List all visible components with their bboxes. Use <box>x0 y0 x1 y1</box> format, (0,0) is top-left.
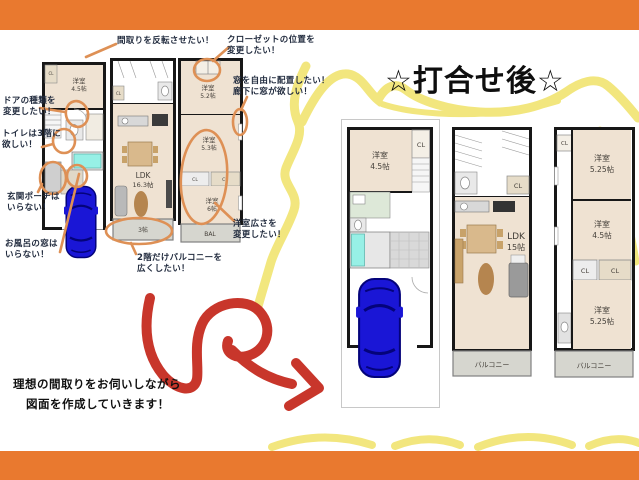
after-car <box>356 277 403 379</box>
annotation-door: ドアの種類を 変更したい！ <box>3 96 56 118</box>
bottom-message: 理想の間取りをお伺いしながら 図面を作成していきます！ <box>13 374 181 414</box>
chair <box>497 241 503 249</box>
balcony-label: BAL <box>204 231 216 238</box>
window <box>239 124 243 140</box>
toilet <box>355 220 362 230</box>
bottom-highlight-1 <box>272 437 372 447</box>
annotation-text: いらない！ <box>5 250 58 261</box>
annotation-balcony: 2階だけバルコニーを 広くしたい！ <box>137 253 222 275</box>
stove <box>493 201 515 212</box>
after-plan-2f: CL LDK 15帖 バルコニー <box>452 127 532 379</box>
entrance-porch <box>45 162 61 192</box>
flip-pointer-line <box>86 44 116 57</box>
ldk-size-label: 16.3帖 <box>133 180 154 189</box>
room-size-label: 5.25帖 <box>590 164 615 174</box>
bottom-highlight-4 <box>589 439 639 446</box>
closet-label: CL <box>48 71 54 76</box>
window <box>555 227 559 245</box>
annotation-text: 変更したい！ <box>227 46 315 57</box>
room-bedroom <box>350 130 412 192</box>
annotation-text: クローゼットの位置を <box>227 35 315 46</box>
window <box>239 196 243 210</box>
annotation-text: 変更したい！ <box>3 107 56 118</box>
chair <box>122 146 127 153</box>
dining-table <box>128 142 152 166</box>
closet-label: CL <box>561 141 569 147</box>
ldk-label: LDK <box>507 232 526 242</box>
stove <box>152 114 168 126</box>
annotation-text: トイレは3階に <box>2 129 61 140</box>
flyer-canvas: CL 洋室 4.5帖 CL <box>0 0 639 480</box>
annotation-flip: 間取りを反転させたい！ <box>117 36 214 47</box>
kitchen-sink <box>461 203 468 210</box>
balcony-label: 3帖 <box>138 226 148 234</box>
room-size-label: 5.25帖 <box>590 316 615 326</box>
room-label: 洋室 <box>203 135 217 144</box>
bathtub <box>352 234 365 266</box>
stairs <box>412 158 430 192</box>
top-orange-bar <box>0 0 639 30</box>
bottom-highlight-3 <box>478 437 572 447</box>
room-label: 洋室 <box>594 153 610 163</box>
divider-highlight-squiggle <box>257 66 306 310</box>
annotation-text: 欲しい！ <box>2 140 61 151</box>
balcony-label: バルコニー <box>475 361 510 369</box>
annotation-text: 広くしたい！ <box>137 264 222 275</box>
annotation-text: 窓を自由に配置したい！ <box>233 76 330 87</box>
annotation-text: 2階だけバルコニーを <box>137 253 222 264</box>
annotation-porch: 玄関ポーチは いらない！ <box>7 192 60 214</box>
room-size-label: 4.5帖 <box>370 161 390 171</box>
bottom-highlight-2 <box>395 439 460 446</box>
annotation-bath-window: お風呂の窓は いらない！ <box>5 239 58 261</box>
entry-tile <box>390 232 429 268</box>
tv <box>511 255 525 263</box>
message-line: 図面を作成していきます！ <box>26 394 181 414</box>
annotation-free-window: 窓を自由に配置したい！ 廊下に窓が欲しい！ <box>233 76 330 98</box>
red-arrow-tail <box>232 350 292 384</box>
balcony-label: バルコニー <box>577 362 612 370</box>
closet-label: CL <box>116 91 122 96</box>
annotation-text: ドアの種類を <box>3 96 56 107</box>
room-label: 洋室 <box>73 76 87 85</box>
tv-board <box>166 180 172 208</box>
page-title: ☆打合せ後☆ <box>385 56 565 100</box>
room-3 <box>181 186 240 224</box>
chair <box>153 146 158 153</box>
room-size-label: 5.2帖 <box>200 92 216 100</box>
bathtub <box>74 154 101 168</box>
annotation-text: いらない！ <box>7 203 60 214</box>
toilet <box>70 125 78 136</box>
annotation-text: 洋室広さを <box>233 219 286 230</box>
room-size-label: 5.3帖 <box>201 144 217 152</box>
room-size-label: 4.5帖 <box>592 230 612 240</box>
chair <box>497 229 503 237</box>
rug <box>134 191 148 217</box>
annotation-room-size: 洋室広さを 変更したい！ <box>233 219 286 241</box>
room-label: 洋室 <box>372 150 388 160</box>
toilet <box>561 322 568 332</box>
room-size-label: 4.5帖 <box>71 85 87 93</box>
annotation-text: 玄関ポーチは <box>7 192 60 203</box>
toilet <box>461 177 470 189</box>
washroom <box>86 114 103 140</box>
room-label: 洋室 <box>594 219 610 229</box>
annotation-text: お風呂の窓は <box>5 239 58 250</box>
kitchen-counter <box>455 201 489 212</box>
annotation-text: 変更したい！ <box>233 230 286 241</box>
closet-label: CL <box>581 267 590 275</box>
sink <box>353 195 365 204</box>
red-arrow-head <box>289 363 319 406</box>
window <box>555 167 559 185</box>
chair <box>153 156 158 163</box>
bottom-orange-bar <box>0 451 639 480</box>
after-plan-3f: CL 洋室 5.25帖 洋室 4.5帖 CL CL 洋室 5.25帖 バルコニー <box>554 127 636 383</box>
annotation-toilet: トイレは3階に 欲しい！ <box>2 129 61 151</box>
rug <box>478 263 494 295</box>
annotation-text: 間取りを反転させたい！ <box>117 36 214 47</box>
room-label: 洋室 <box>202 83 216 92</box>
sofa <box>115 186 127 216</box>
room-label: 洋室 <box>594 305 610 315</box>
closet-label: CL <box>222 177 228 183</box>
closet-label: CL <box>417 141 426 149</box>
chair <box>460 229 466 237</box>
sideboard <box>455 239 463 283</box>
kitchen-sink <box>122 118 128 124</box>
message-line: 理想の間取りをお伺いしながら <box>13 374 181 394</box>
sofa <box>509 263 528 297</box>
before-car <box>64 182 98 262</box>
chair <box>122 156 127 163</box>
title-highlight-understroke <box>382 101 558 114</box>
annotation-closet: クローゼットの位置を 変更したい！ <box>227 35 315 57</box>
closet-label: CL <box>514 182 523 190</box>
before-plan-2f: CL LDK 16.3帖 3帖 <box>110 58 176 246</box>
room-label: 洋室 <box>206 196 220 205</box>
ldk-size-label: 15帖 <box>507 242 525 252</box>
closet-label: CL <box>611 267 620 275</box>
ldk-label: LDK <box>136 171 152 180</box>
toilet <box>162 86 169 96</box>
closet-label: CL <box>192 177 198 183</box>
room-size-label: 6帖 <box>207 205 217 213</box>
dining-table <box>467 225 496 253</box>
annotation-text: 廊下に窓が欲しい！ <box>233 87 330 98</box>
